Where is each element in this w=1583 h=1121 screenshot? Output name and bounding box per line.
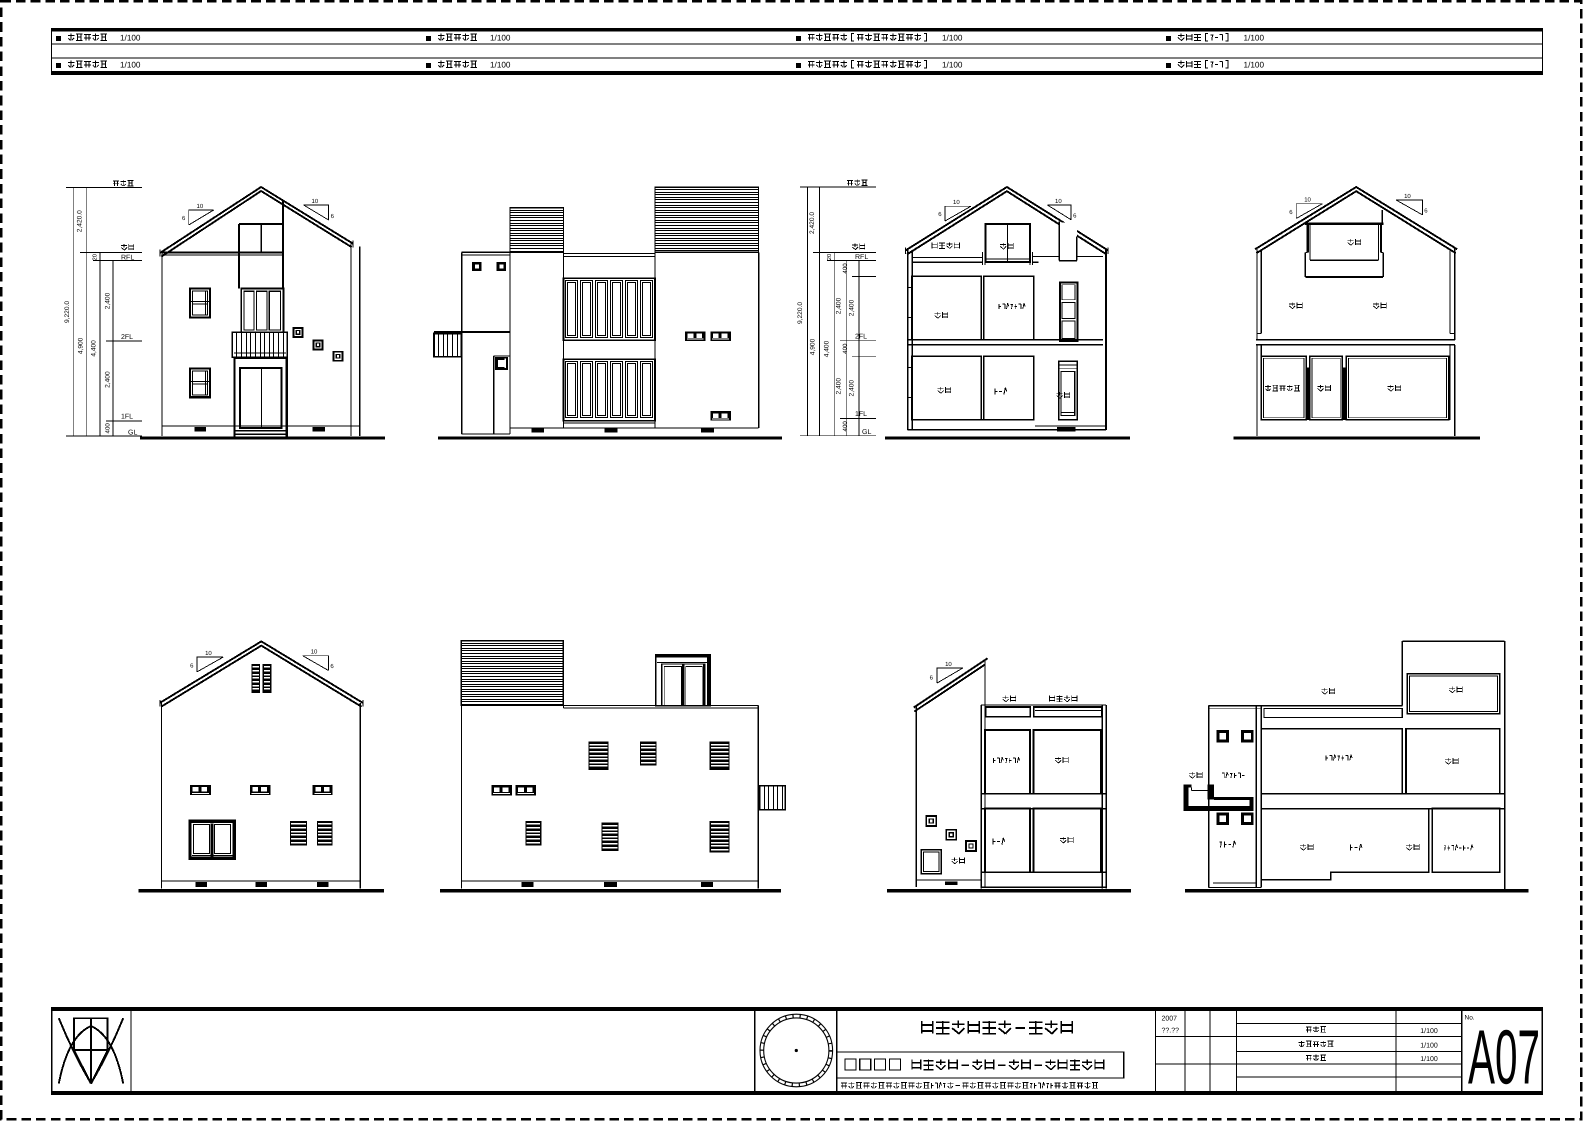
svg-text:9,220.0: 9,220.0 <box>64 301 71 323</box>
svg-text:RFL: RFL <box>121 254 134 261</box>
svg-text:10: 10 <box>205 650 212 657</box>
svg-text:400: 400 <box>105 423 112 434</box>
svg-text:10: 10 <box>1404 193 1411 200</box>
svg-text:GL: GL <box>128 429 137 436</box>
svg-text:10: 10 <box>197 203 204 210</box>
svg-text:10: 10 <box>953 199 960 206</box>
svg-text:2,400: 2,400 <box>105 292 112 309</box>
svg-text:400: 400 <box>842 263 849 274</box>
svg-text:20: 20 <box>92 254 99 260</box>
svg-text:10: 10 <box>311 649 318 656</box>
svg-text:10: 10 <box>945 661 952 668</box>
svg-text:1/100: 1/100 <box>1244 61 1265 70</box>
svg-text:4,900: 4,900 <box>78 337 85 354</box>
svg-text:RFL: RFL <box>855 254 868 261</box>
svg-text:2,400: 2,400 <box>849 380 856 397</box>
svg-text:GL: GL <box>862 429 871 436</box>
svg-text:1FL: 1FL <box>855 411 867 418</box>
svg-text:10: 10 <box>1055 198 1062 205</box>
svg-text:2007: 2007 <box>1162 1016 1178 1023</box>
svg-text:A07: A07 <box>1468 1015 1540 1101</box>
svg-text:10: 10 <box>1304 197 1311 204</box>
svg-text:1/100: 1/100 <box>1244 34 1265 43</box>
svg-text:2,400: 2,400 <box>836 297 843 314</box>
svg-text:1/100: 1/100 <box>490 34 511 43</box>
svg-text:2,400: 2,400 <box>849 299 856 316</box>
svg-text:4,400: 4,400 <box>90 340 97 357</box>
svg-text:1FL: 1FL <box>121 413 133 420</box>
svg-text:2,400: 2,400 <box>105 371 112 388</box>
svg-text:10: 10 <box>312 198 319 205</box>
svg-text:1/100: 1/100 <box>120 34 141 43</box>
svg-text:4,400: 4,400 <box>824 340 831 357</box>
svg-text:1/100: 1/100 <box>942 34 963 43</box>
svg-text:??.??: ??.?? <box>1162 1028 1180 1035</box>
svg-text:2,420.0: 2,420.0 <box>809 212 816 234</box>
svg-text:1/100: 1/100 <box>490 61 511 70</box>
svg-text:2FL: 2FL <box>855 334 867 341</box>
svg-text:2FL: 2FL <box>121 334 133 341</box>
svg-text:400: 400 <box>842 421 849 432</box>
svg-text:400: 400 <box>842 343 849 354</box>
svg-text:1/100: 1/100 <box>120 61 141 70</box>
svg-text:1/100: 1/100 <box>1420 1041 1438 1049</box>
svg-text:1/100: 1/100 <box>1420 1027 1438 1035</box>
svg-text:1/100: 1/100 <box>1420 1055 1438 1063</box>
svg-text:20: 20 <box>826 254 833 260</box>
svg-text:2,420.0: 2,420.0 <box>77 210 84 232</box>
svg-text:4,900: 4,900 <box>810 338 817 355</box>
svg-text:9,220.0: 9,220.0 <box>797 302 804 324</box>
svg-text:1/100: 1/100 <box>942 61 963 70</box>
svg-text:2,400: 2,400 <box>836 378 843 395</box>
